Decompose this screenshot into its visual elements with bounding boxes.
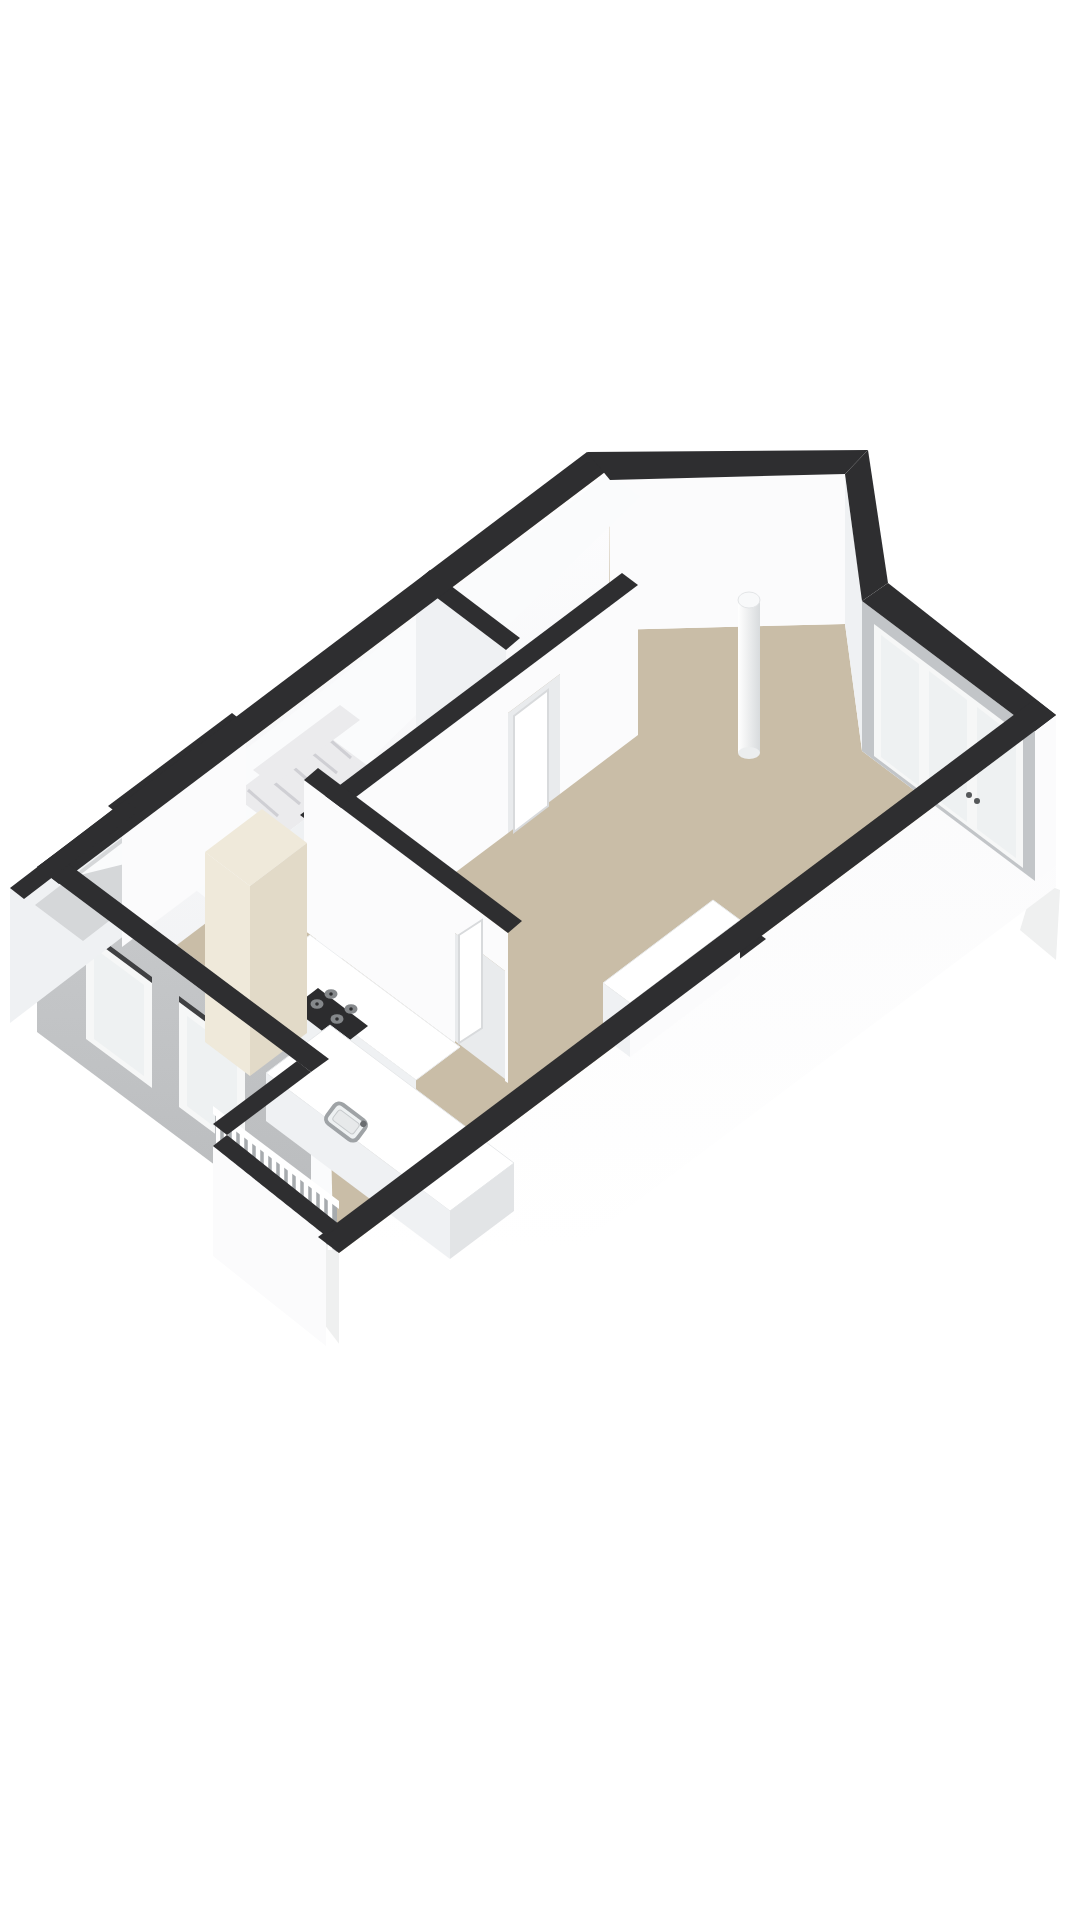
door-handle-icon xyxy=(974,798,980,804)
structural-column xyxy=(738,592,760,759)
door-handle-icon xyxy=(966,792,972,798)
hallway-door xyxy=(514,690,548,832)
cut-wall-face xyxy=(610,474,845,630)
floor-plan-3d-render xyxy=(0,0,1080,1920)
kitchen-door xyxy=(459,920,482,1043)
floor-plan-canvas xyxy=(0,0,1080,1920)
